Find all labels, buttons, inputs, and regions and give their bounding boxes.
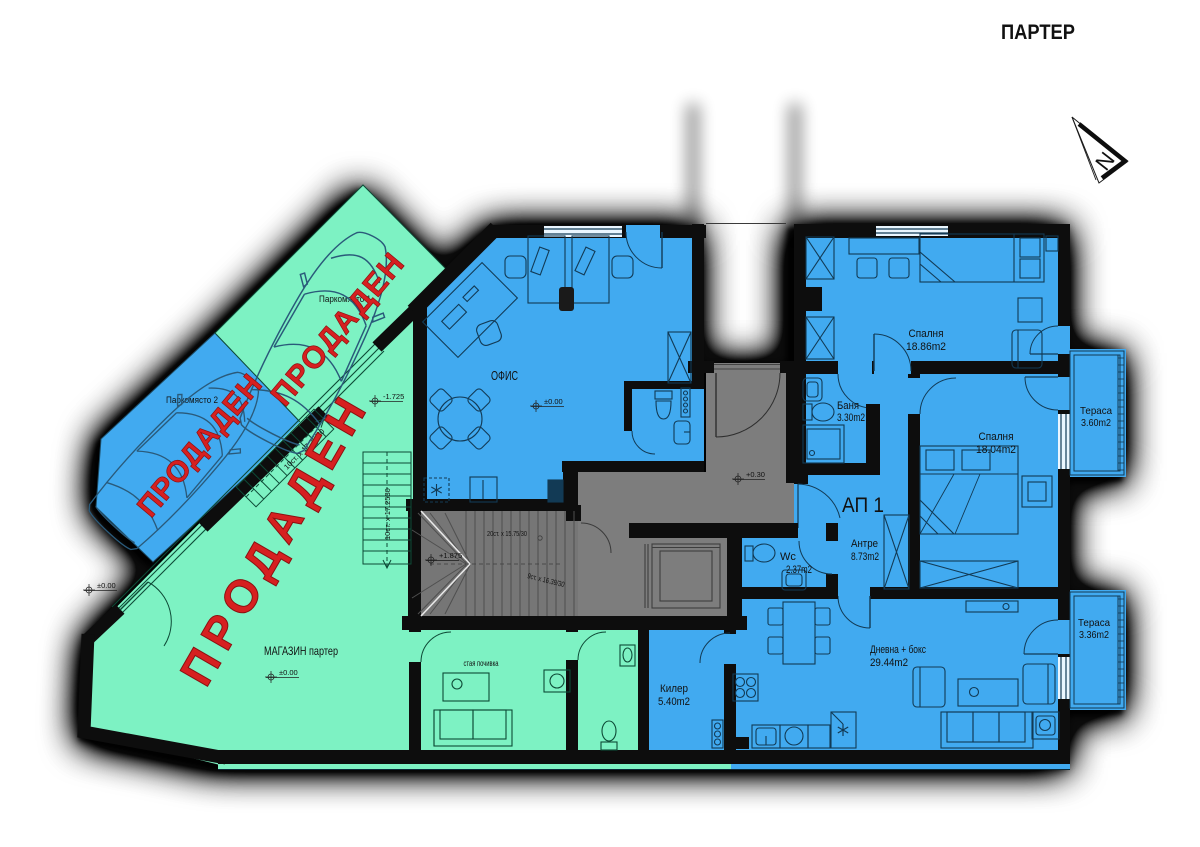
svg-text:МАГАЗИН партер: МАГАЗИН партер xyxy=(264,644,338,658)
svg-text:5.40m2: 5.40m2 xyxy=(658,696,690,708)
svg-text:Килер: Килер xyxy=(660,683,688,695)
svg-text:Тераса: Тераса xyxy=(1078,617,1110,629)
svg-text:+0.30: +0.30 xyxy=(746,470,765,479)
svg-text:18.04m2: 18.04m2 xyxy=(976,444,1016,456)
svg-text:±0.00: ±0.00 xyxy=(544,397,563,406)
svg-text:29.44m2: 29.44m2 xyxy=(870,657,908,669)
svg-text:3.36m2: 3.36m2 xyxy=(1079,629,1109,641)
svg-text:Антре: Антре xyxy=(851,538,878,550)
svg-text:2.37m2: 2.37m2 xyxy=(786,564,812,576)
svg-text:Баня: Баня xyxy=(837,400,859,412)
svg-text:Спалня: Спалня xyxy=(909,328,944,340)
svg-text:±0.00: ±0.00 xyxy=(97,581,116,590)
svg-text:±0.00: ±0.00 xyxy=(279,668,298,677)
svg-text:8.73m2: 8.73m2 xyxy=(851,551,879,563)
svg-text:3.30m2: 3.30m2 xyxy=(837,412,865,424)
svg-text:ОФИС: ОФИС xyxy=(491,368,518,383)
svg-text:+1.875: +1.875 xyxy=(439,551,462,560)
svg-text:стая почивка: стая почивка xyxy=(464,659,499,668)
svg-text:Дневна + бокс: Дневна + бокс xyxy=(870,644,926,656)
svg-text:Wc: Wc xyxy=(780,551,796,563)
svg-text:20ст. x 15.75/30: 20ст. x 15.75/30 xyxy=(487,529,527,538)
svg-text:Тераса: Тераса xyxy=(1080,405,1112,417)
svg-text:3.60m2: 3.60m2 xyxy=(1081,417,1111,429)
svg-text:Спалня: Спалня xyxy=(979,431,1014,443)
svg-text:АП 1: АП 1 xyxy=(842,494,884,517)
svg-text:18.86m2: 18.86m2 xyxy=(906,341,946,353)
svg-text:-1.725: -1.725 xyxy=(383,392,404,401)
svg-text:ПАРТЕР: ПАРТЕР xyxy=(1001,21,1075,44)
svg-text:Паркомясто 2: Паркомясто 2 xyxy=(166,395,218,405)
svg-text:10ст. x 17.2530: 10ст. x 17.2530 xyxy=(383,488,392,540)
